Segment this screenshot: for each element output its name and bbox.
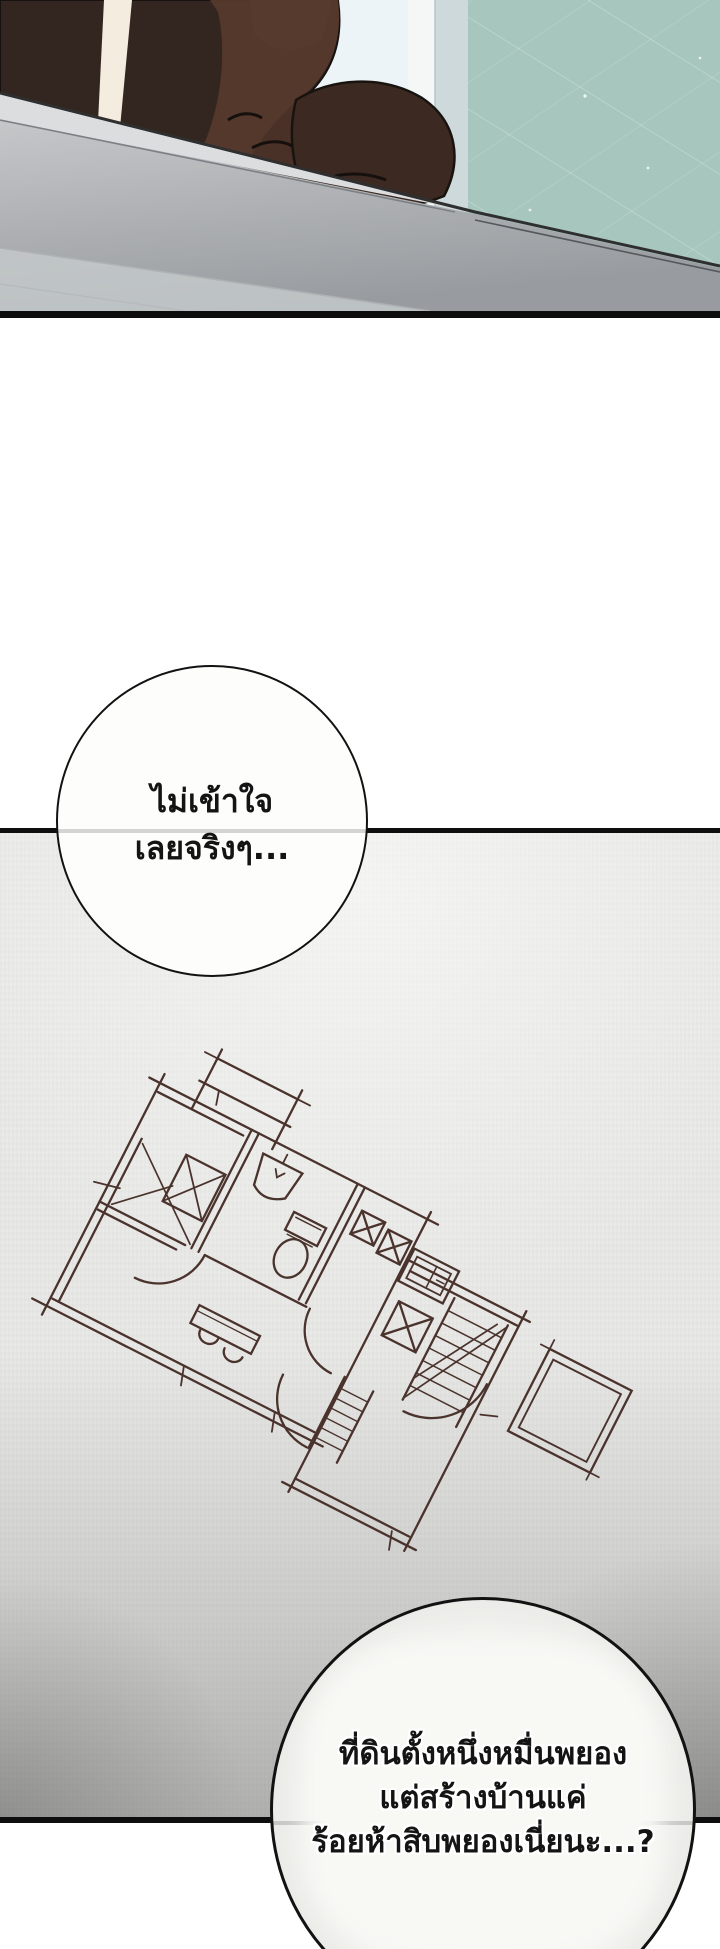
speech-text: ที่ดินตั้งหนึ่งหมื่นพยอง แต่สร้างบ้านแค่… <box>311 1732 654 1864</box>
speech-line: แต่สร้างบ้านแค่ <box>311 1776 654 1820</box>
rooftop-scene-art <box>0 0 720 311</box>
window-glint <box>529 209 532 212</box>
comic-page: ไม่เข้าใจ เลยจริงๆ... ที่ดินตั้งหนึ่งหมื… <box>0 0 720 1949</box>
floorplan <box>4 1024 694 1620</box>
side-room-square <box>495 1335 645 1484</box>
window-glint <box>647 167 650 170</box>
closet-x-box <box>163 1155 226 1221</box>
kitchen-counter-x <box>348 1211 414 1265</box>
speech-text: ไม่เข้าใจ เลยจริงๆ... <box>135 778 290 873</box>
speech-line: ไม่เข้าใจ <box>135 778 290 825</box>
window-glint <box>699 57 702 60</box>
speech-bubble-top: ไม่เข้าใจ เลยจริงๆ... <box>56 665 368 977</box>
speech-line: เลยจริงๆ... <box>135 825 290 872</box>
toilet <box>265 1212 326 1284</box>
outer-walls <box>7 1067 557 1556</box>
speech-line: ร้อยห้าสิบพยองเนี่ยนะ...? <box>311 1820 654 1864</box>
panel-rooftop-scene <box>0 0 720 318</box>
staircase-hatched <box>403 1298 508 1427</box>
door-arc <box>258 1375 331 1448</box>
speech-line: ที่ดินตั้งหนึ่งหมื่นพยอง <box>311 1732 654 1776</box>
table-with-chairs <box>183 1305 260 1368</box>
closet-x-box <box>382 1301 433 1352</box>
door-arc <box>288 1309 353 1374</box>
window-glint <box>583 94 586 97</box>
